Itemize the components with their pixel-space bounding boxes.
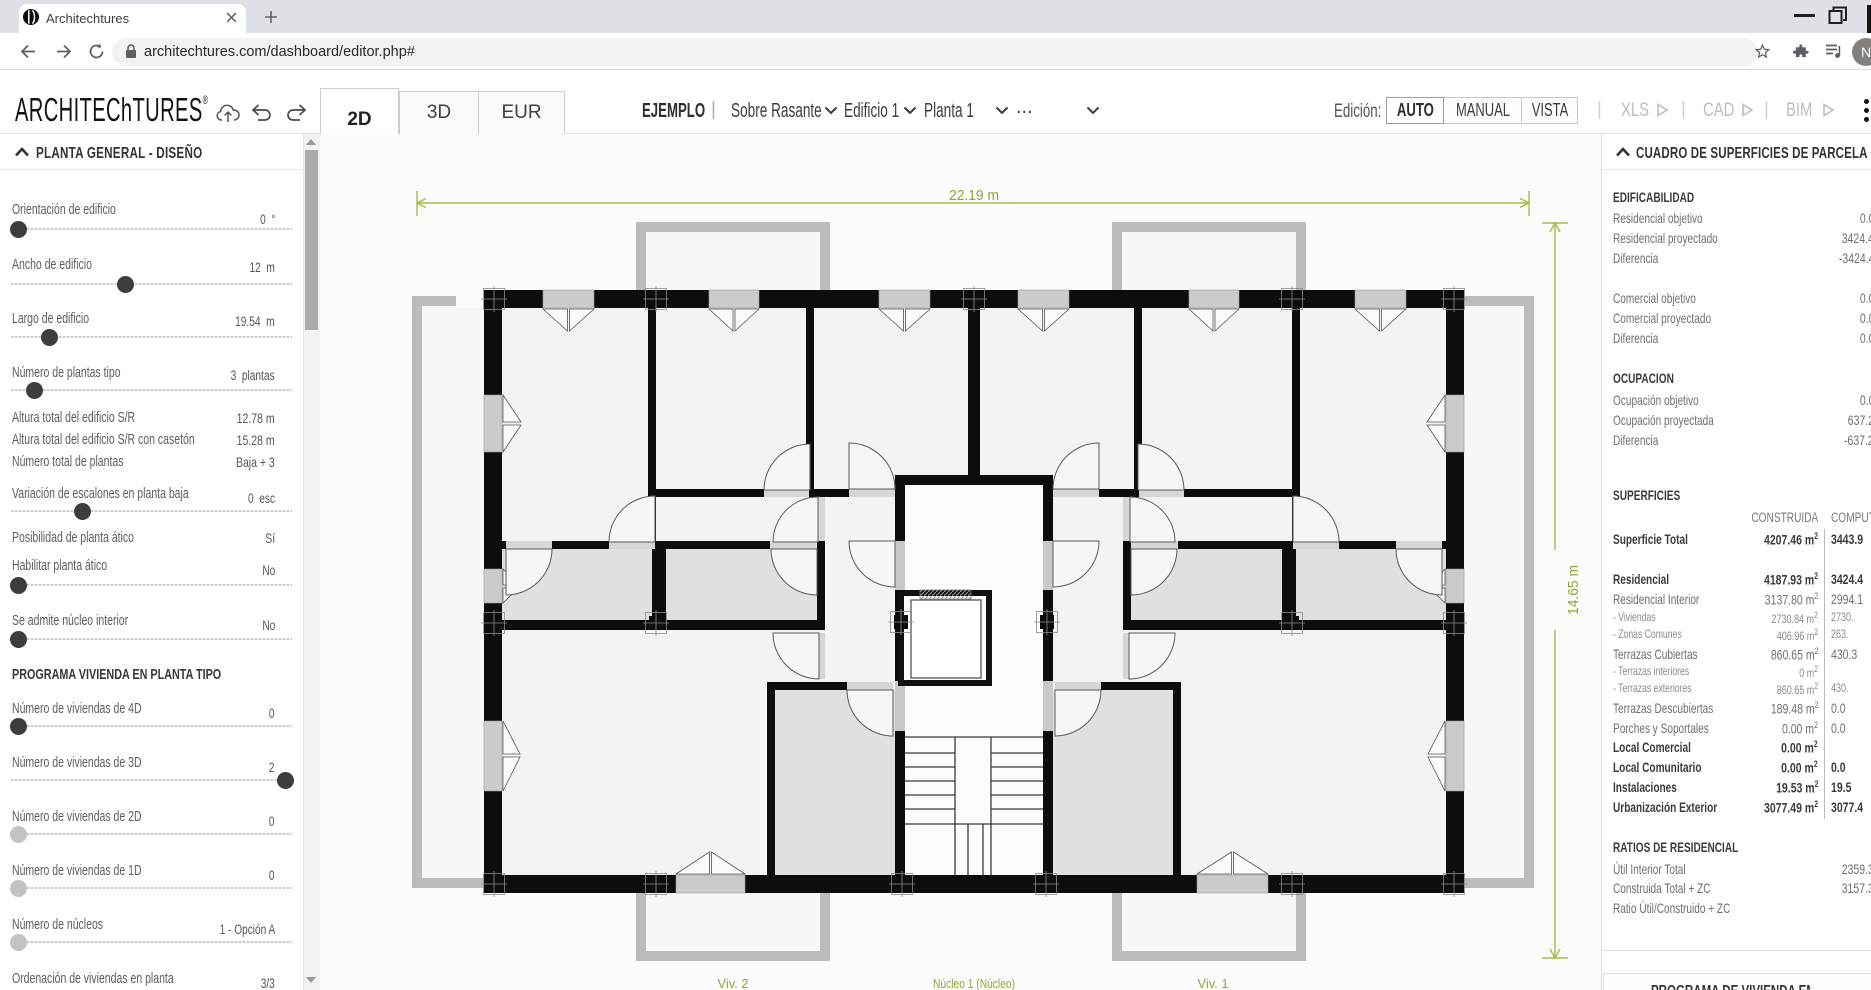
svg-text:Núcleo 1 (Núcleo): Núcleo 1 (Núcleo)	[933, 976, 1015, 990]
svg-text:Viv. 2: Viv. 2	[718, 976, 749, 990]
svg-text:22.19 m: 22.19 m	[949, 187, 999, 204]
svg-text:14.65 m: 14.65 m	[1565, 565, 1582, 615]
svg-text:Viv. 1: Viv. 1	[1198, 976, 1229, 990]
